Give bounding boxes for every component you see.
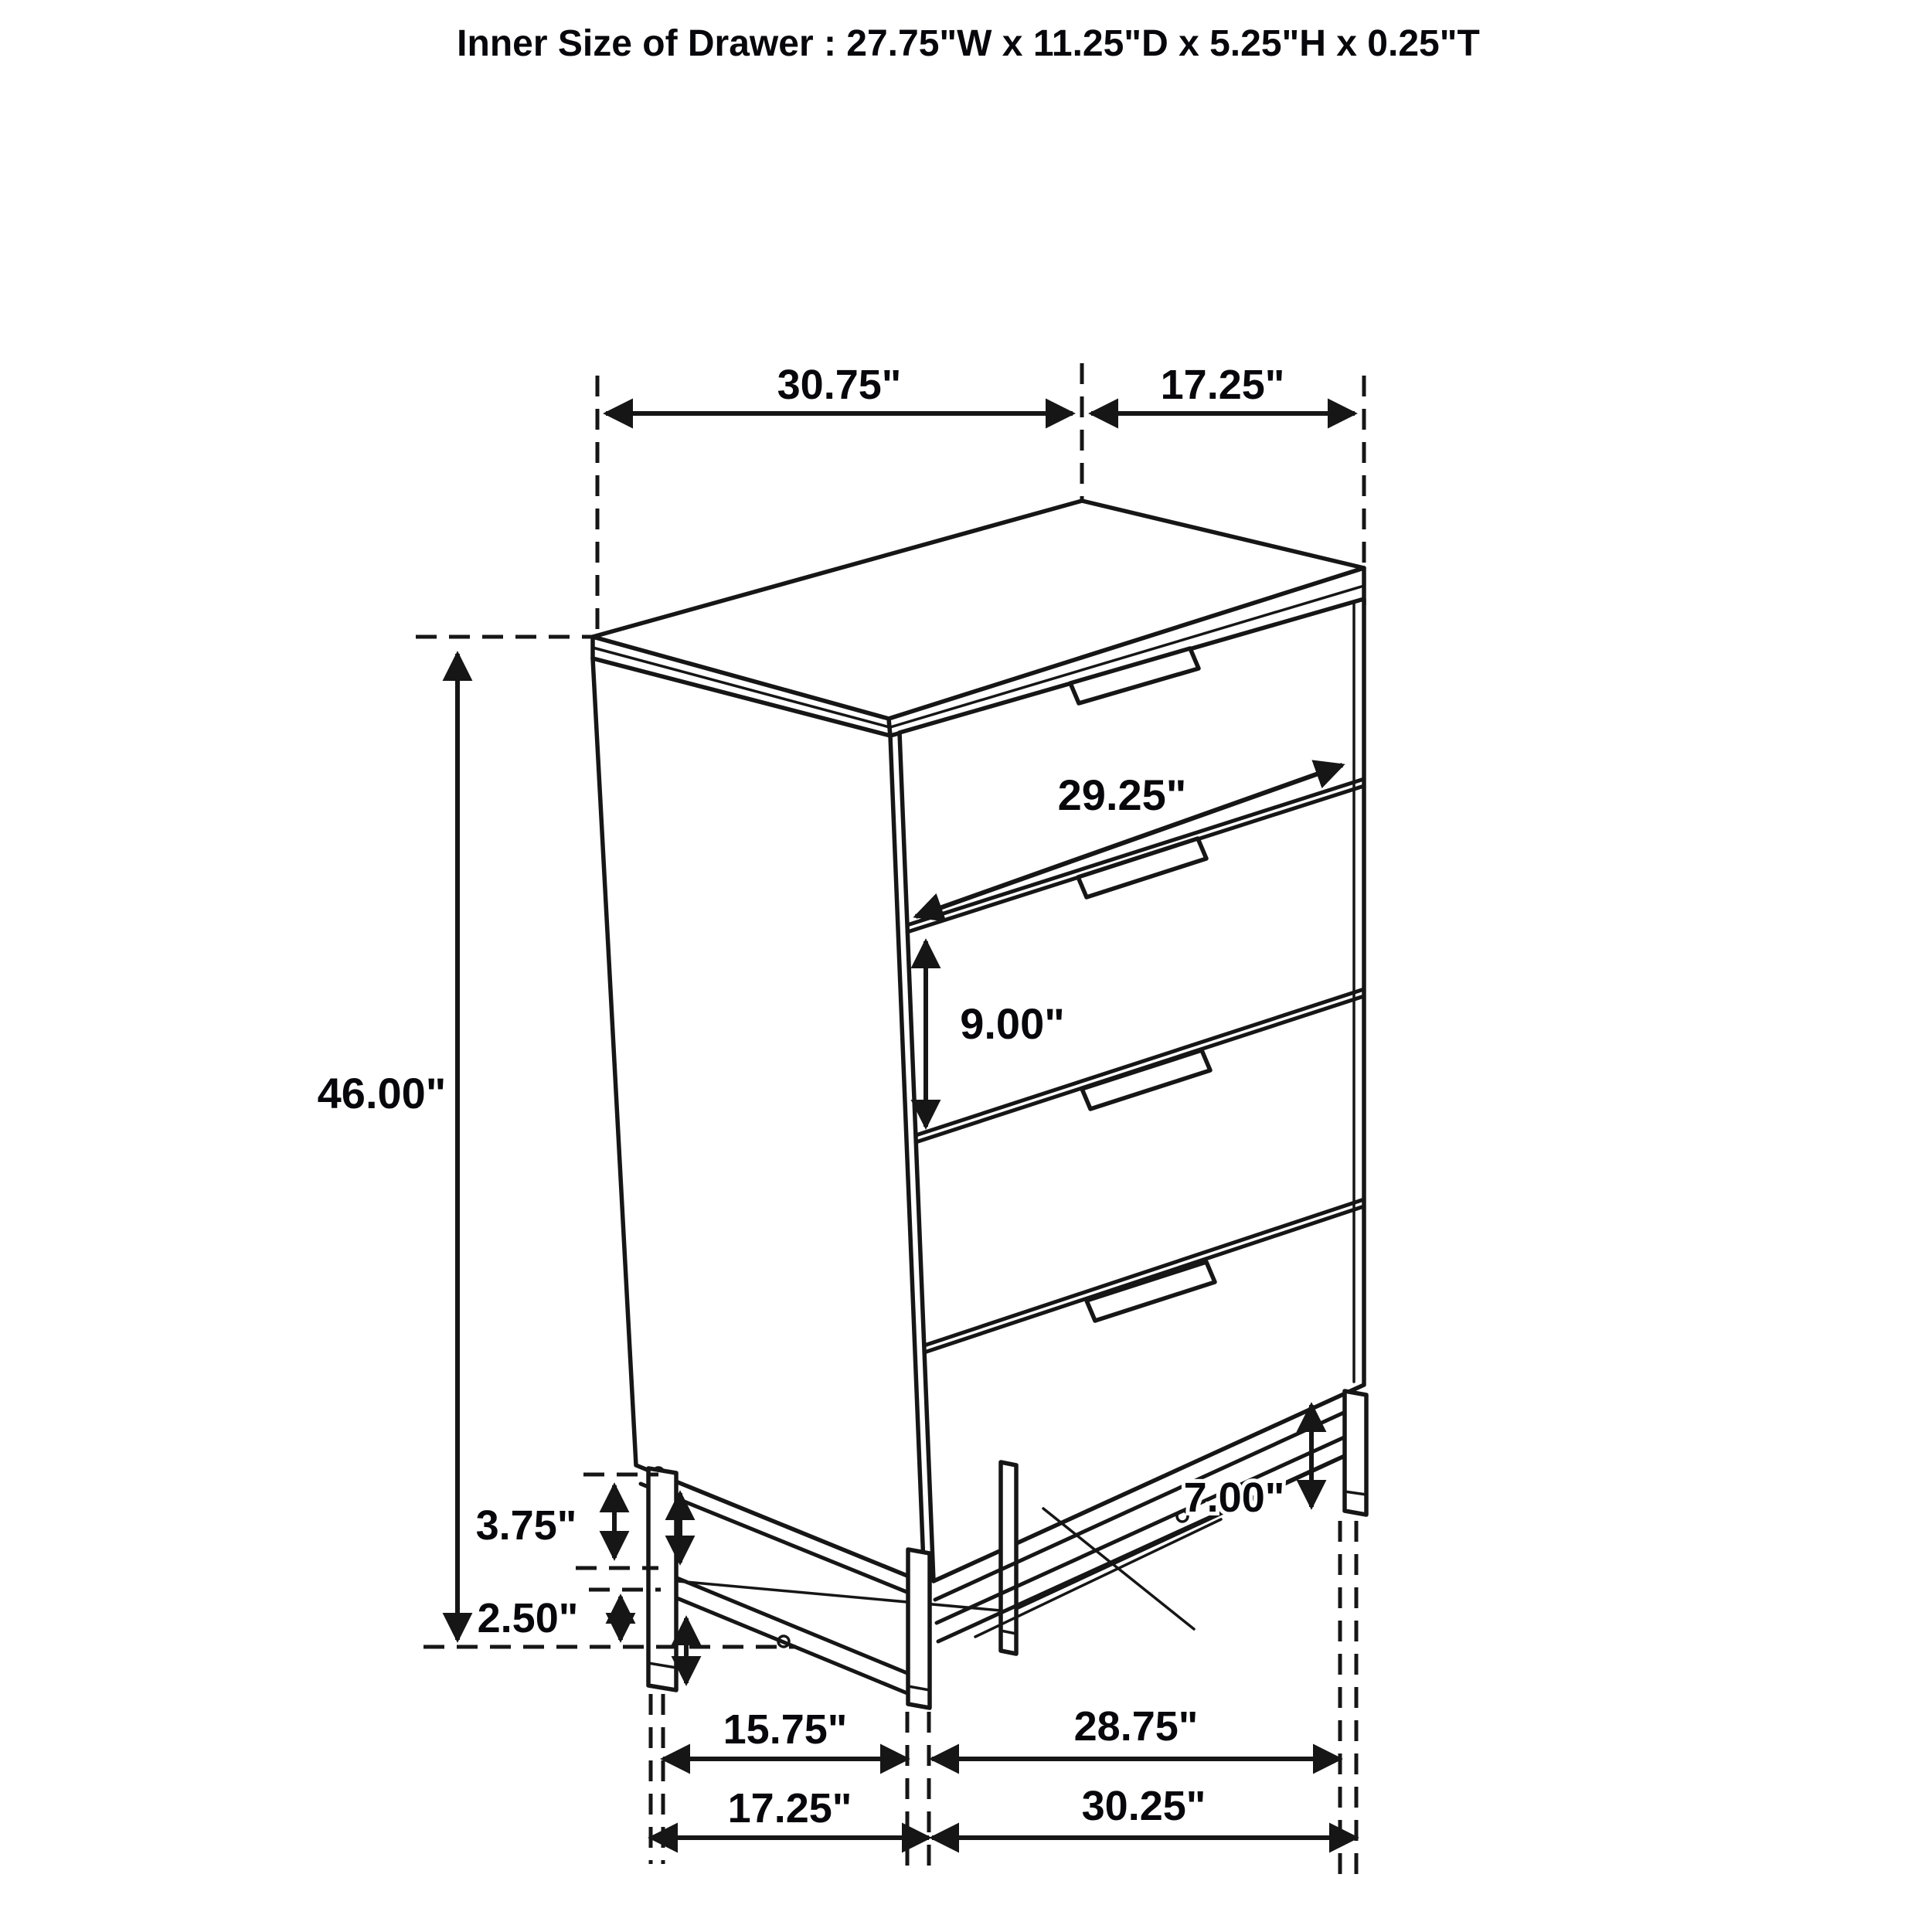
dim-label-overall-height: 46.00" [318, 1069, 447, 1117]
dim-label-feet-front-outer: 30.25" [1082, 1783, 1206, 1829]
side-lower-rail-bottom [655, 1589, 917, 1697]
dim-label-base-lower-height: 2.50" [478, 1595, 579, 1641]
cross-brace-b [1043, 1509, 1194, 1629]
dim-label-feet-side-outer: 17.25" [728, 1785, 852, 1832]
dim-label-drawer-height: 9.00" [960, 999, 1065, 1048]
dim-label-top-depth: 17.25" [1161, 362, 1285, 408]
dim-label-drawer-width: 29.25" [1058, 770, 1187, 819]
dim-label-leg-height: 7.00" [1184, 1475, 1285, 1521]
rear-stretcher-left [678, 1581, 1001, 1611]
diagram-page: Inner Size of Drawer : 27.75"W x 11.25"D… [0, 0, 1932, 1932]
dim-label-base-frame-height: 3.75" [476, 1502, 577, 1549]
front-center-leg [908, 1549, 930, 1708]
diagram-title: Inner Size of Drawer : 27.75"W x 11.25"D… [457, 23, 1480, 64]
chest-dimension-diagram: Inner Size of Drawer : 27.75"W x 11.25"D… [0, 0, 1932, 1932]
dim-label-feet-front-inner: 28.75" [1074, 1703, 1199, 1750]
side-panel [593, 658, 924, 1583]
dim-label-top-width: 30.75" [777, 362, 902, 408]
back-leg [1001, 1462, 1016, 1654]
dim-label-feet-side-inner: 15.75" [723, 1706, 848, 1753]
side-lower-rail-top [655, 1569, 917, 1677]
right-leg [1345, 1391, 1366, 1515]
front-left-leg [648, 1468, 676, 1690]
